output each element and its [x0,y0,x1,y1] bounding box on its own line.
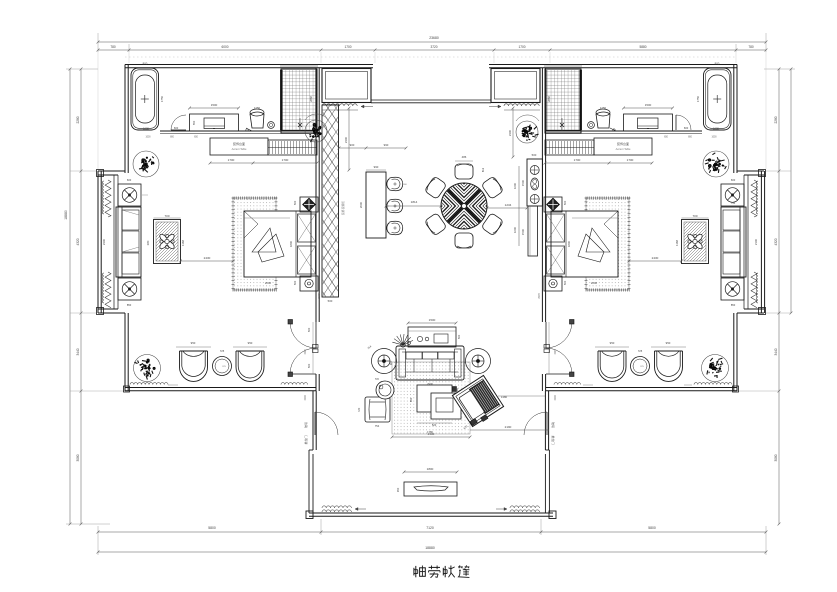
svg-text:1750: 1750 [160,95,164,102]
svg-text:1814: 1814 [411,200,418,204]
svg-text:2430: 2430 [204,256,211,260]
svg-text:600: 600 [684,126,689,130]
svg-text:3440: 3440 [774,348,778,355]
svg-text:1000: 1000 [711,137,717,139]
svg-text:玻璃: 玻璃 [551,422,556,428]
svg-text:2280: 2280 [774,116,778,123]
svg-text:1380: 1380 [501,395,508,399]
svg-text:520: 520 [432,423,437,427]
svg-text:1080: 1080 [713,127,719,131]
svg-text:500: 500 [328,299,333,303]
svg-text:6000: 6000 [221,45,228,49]
svg-text:700: 700 [692,214,697,218]
svg-text:1500: 1500 [645,103,652,107]
svg-text:812: 812 [481,167,485,172]
svg-text:装饰 装饰柜: 装饰 装饰柜 [341,201,345,215]
svg-text:3440: 3440 [76,348,80,355]
svg-text:380: 380 [146,240,150,245]
svg-text:2868: 2868 [547,96,551,102]
svg-text:600: 600 [174,126,179,130]
svg-text:1700: 1700 [518,45,525,49]
svg-text:2868: 2868 [309,96,313,102]
svg-text:720: 720 [357,407,361,412]
svg-text:1080: 1080 [143,127,149,131]
svg-text:2100: 2100 [754,238,758,245]
svg-text:2579: 2579 [318,293,321,299]
svg-text:500: 500 [457,334,461,339]
svg-text:2000: 2000 [359,201,363,208]
svg-text:500: 500 [307,327,311,332]
svg-text:2000: 2000 [265,281,272,285]
svg-text:1600: 1600 [513,226,517,233]
svg-text:2579: 2579 [538,293,541,299]
svg-text:1594: 1594 [304,349,307,355]
svg-text:1594: 1594 [554,349,557,355]
svg-text:玻璃: 玻璃 [303,422,308,428]
svg-text:800: 800 [143,62,148,66]
svg-text:800: 800 [715,62,720,66]
svg-text:Accent Table: Accent Table [616,147,631,151]
svg-text:990: 990 [384,143,389,147]
svg-text:Accent Table: Accent Table [232,147,247,151]
svg-text:990: 990 [374,165,379,169]
svg-text:18880: 18880 [64,210,68,220]
svg-text:1600: 1600 [513,182,517,189]
svg-text:650: 650 [409,397,413,402]
svg-text:780: 780 [748,45,754,49]
svg-text:2400: 2400 [428,432,435,436]
svg-text:1700: 1700 [627,158,634,162]
svg-text:1250: 1250 [254,106,261,110]
svg-text:3080: 3080 [774,454,778,461]
svg-text:780: 780 [110,45,116,49]
svg-text:推拉门: 推拉门 [551,435,556,444]
svg-text:1188: 1188 [675,240,679,246]
svg-text:1500: 1500 [429,318,436,322]
svg-text:550: 550 [192,120,196,125]
svg-text:1800: 1800 [567,240,571,247]
svg-text:2300: 2300 [344,136,348,143]
svg-text:23680: 23680 [429,36,439,40]
svg-text:900: 900 [350,143,355,147]
svg-text:1500: 1500 [521,179,525,186]
svg-text:3720: 3720 [430,45,437,49]
svg-text:950: 950 [666,341,671,345]
svg-text:950: 950 [248,341,253,345]
svg-text:950: 950 [191,341,196,345]
svg-text:2190: 2190 [505,425,512,429]
svg-text:1500: 1500 [304,395,307,401]
svg-text:725: 725 [220,349,225,353]
svg-text:2280: 2280 [76,116,80,123]
svg-text:600: 600 [127,178,132,182]
svg-text:1500: 1500 [211,103,218,107]
svg-text:1500: 1500 [554,395,557,401]
svg-text:1700: 1700 [344,45,351,49]
svg-text:1188: 1188 [181,240,185,246]
svg-text:500: 500 [563,200,567,205]
svg-text:486: 486 [462,155,467,159]
svg-text:2000: 2000 [591,281,598,285]
svg-text:1000: 1000 [145,137,151,139]
svg-text:装饰台面: 装饰台面 [617,141,629,146]
svg-text:1700: 1700 [228,158,235,162]
svg-text:1500: 1500 [521,228,525,235]
svg-text:500: 500 [563,280,567,285]
svg-text:725: 725 [638,349,643,353]
svg-text:5800: 5800 [208,526,216,530]
svg-text:1800: 1800 [289,240,293,247]
svg-text:754: 754 [375,424,380,428]
svg-text:2300: 2300 [508,129,512,136]
svg-text:1700: 1700 [574,158,581,162]
svg-text:950: 950 [610,341,615,345]
svg-text:7120: 7120 [426,526,434,530]
svg-text:推拉门: 推拉门 [303,435,308,444]
svg-text:5880: 5880 [639,45,646,49]
svg-text:565: 565 [375,378,380,381]
svg-text:500: 500 [532,153,537,157]
svg-text:2300: 2300 [102,238,106,245]
svg-text:1800: 1800 [427,467,434,471]
svg-text:18880: 18880 [425,546,435,550]
svg-text:700: 700 [164,214,169,218]
svg-text:350: 350 [396,487,400,492]
svg-text:600: 600 [731,178,736,182]
svg-text:1250: 1250 [600,106,607,110]
svg-text:500: 500 [307,363,311,368]
svg-text:850: 850 [127,303,132,307]
svg-text:500: 500 [293,200,297,205]
svg-text:4320: 4320 [76,238,80,245]
svg-text:500: 500 [293,280,297,285]
svg-text:5800: 5800 [648,526,656,530]
svg-text:2430: 2430 [652,256,659,260]
svg-text:850: 850 [731,303,736,307]
svg-text:1750: 1750 [696,95,700,102]
svg-text:1700: 1700 [282,158,289,162]
svg-text:4320: 4320 [774,238,778,245]
svg-text:1234: 1234 [505,203,512,207]
svg-text:3080: 3080 [76,454,80,461]
svg-text:装饰台面: 装饰台面 [233,141,245,146]
